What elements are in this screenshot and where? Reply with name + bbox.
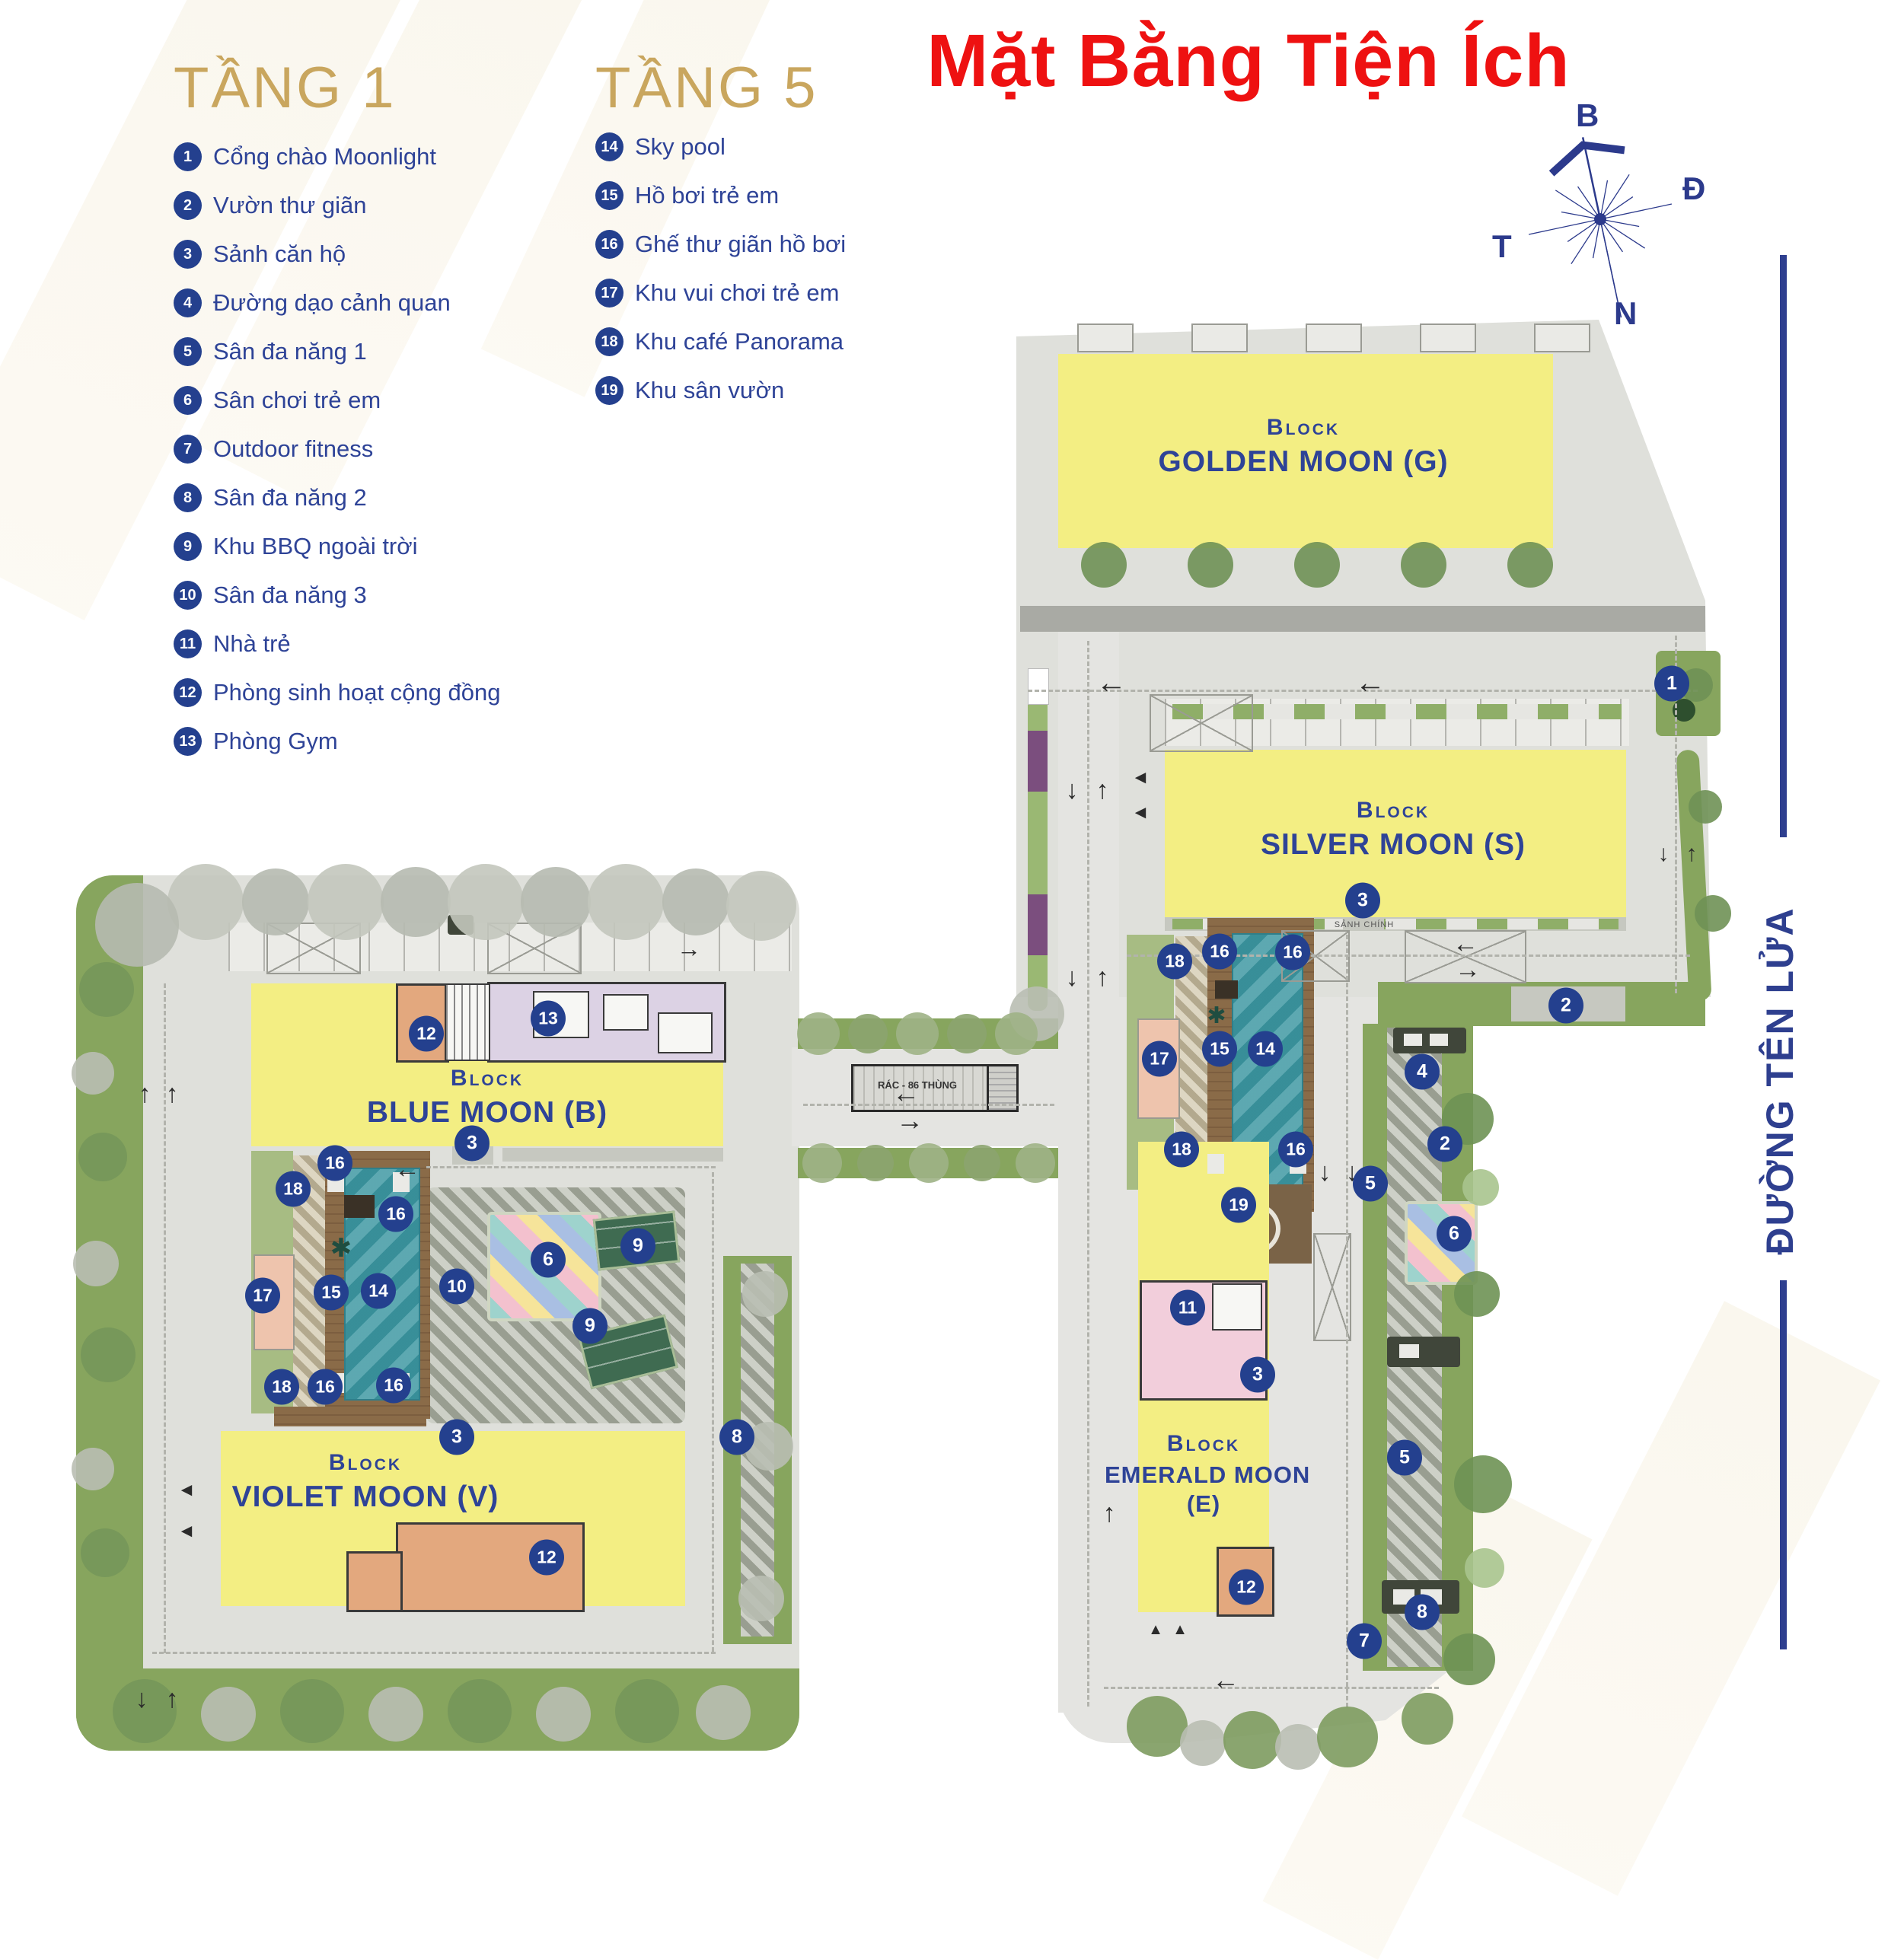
tree-icon <box>242 868 309 935</box>
tree-icon <box>1188 542 1233 588</box>
arrow-right-icon: → <box>896 1107 923 1134</box>
map-shape <box>1346 935 1348 1707</box>
tree-icon <box>1223 1711 1281 1769</box>
road-edge-line <box>1780 255 1787 837</box>
arrow-left-icon: ← <box>1212 1666 1239 1694</box>
arrow-left-icon: ← <box>1355 668 1386 698</box>
map-shape <box>803 1104 1054 1106</box>
arrow-up-icon: ↑ <box>166 1686 179 1712</box>
map-marker-8: 8 <box>1405 1595 1440 1630</box>
map-shape <box>1306 323 1362 352</box>
map-marker-5: 5 <box>1387 1440 1422 1476</box>
tree-icon <box>95 883 179 967</box>
tree-icon <box>909 1143 949 1183</box>
map-shape <box>1104 1687 1439 1689</box>
tree-icon <box>696 1685 751 1740</box>
tree-icon <box>280 1679 344 1743</box>
block-label-blue: BlockBLUE MOON (B) <box>274 1066 700 1130</box>
map-shape <box>1387 1337 1460 1367</box>
map-shape <box>1028 894 1048 955</box>
road-edge-line <box>1780 1280 1787 1649</box>
map-marker-16: 16 <box>1278 1132 1313 1168</box>
map-shape <box>1420 323 1476 352</box>
tree-icon <box>964 1145 1000 1181</box>
map-marker-3: 3 <box>1240 1357 1275 1393</box>
map-shape <box>1399 1344 1419 1358</box>
tri-left-icon: ◄ <box>177 1522 196 1541</box>
palm-icon: ✱ <box>1207 1005 1226 1028</box>
tree-icon <box>1454 1455 1512 1513</box>
map-marker-6: 6 <box>531 1242 566 1278</box>
tree-icon <box>947 1014 987 1053</box>
trash-area-label: RÁC - 86 THÙNG <box>849 1079 986 1091</box>
tree-icon <box>381 867 451 937</box>
map-shape <box>1077 323 1134 352</box>
main-lobby-label: SẢNH CHÍNH <box>1311 920 1418 929</box>
arrow-left-icon: ← <box>1453 931 1478 957</box>
tree-icon <box>1401 542 1446 588</box>
arrow-left-icon: ← <box>394 1156 420 1182</box>
tree-icon <box>308 864 384 940</box>
map-marker-15: 15 <box>1202 1031 1237 1067</box>
map-shape <box>1207 1154 1224 1174</box>
arrow-right-icon: → <box>677 936 701 961</box>
map-shape <box>1020 606 1705 632</box>
tree-icon <box>448 864 524 940</box>
map-shape <box>1191 323 1248 352</box>
map-shape <box>1534 323 1590 352</box>
compass-rose: B Đ T N <box>1486 91 1714 327</box>
block-label-violet: BlockVIOLET MOON (V) <box>152 1450 579 1514</box>
tree-icon <box>368 1687 423 1742</box>
block-label-golden: BlockGOLDEN MOON (G) <box>1090 415 1516 479</box>
tree-icon <box>896 1012 939 1055</box>
map-shape <box>426 1166 716 1168</box>
tree-icon <box>742 1271 788 1317</box>
tree-icon <box>1016 1143 1055 1183</box>
arrow-down-icon: ↓ <box>1319 1159 1331 1185</box>
arrow-down-icon: ↓ <box>1066 777 1079 803</box>
tree-icon <box>1275 1724 1321 1770</box>
map-marker-15: 15 <box>314 1275 349 1311</box>
tree-icon <box>588 864 664 940</box>
map-shape <box>1087 641 1089 1707</box>
tree-icon <box>167 864 244 940</box>
tree-icon <box>79 962 134 1017</box>
tree-icon <box>1294 542 1340 588</box>
map-shape <box>274 1407 426 1426</box>
map-marker-16: 16 <box>378 1197 413 1232</box>
map-marker-2: 2 <box>1548 988 1583 1024</box>
map-shape <box>1028 668 1049 705</box>
map-shape <box>344 1195 375 1218</box>
map-marker-3: 3 <box>1345 883 1380 919</box>
map-marker-16: 16 <box>1275 935 1310 970</box>
tree-icon <box>201 1687 256 1742</box>
tri-up-icon: ▲ <box>1148 1622 1163 1637</box>
tree-icon <box>615 1679 679 1743</box>
tree-icon <box>726 871 796 941</box>
page: { "title": "Mặt Bằng Tiện Ích", "compass… <box>0 0 1888 1778</box>
tree-icon <box>662 868 729 935</box>
map-marker-18: 18 <box>1164 1132 1199 1168</box>
map-marker-2: 2 <box>1427 1127 1462 1162</box>
tree-icon <box>78 1133 127 1181</box>
map-marker-4: 4 <box>1405 1054 1440 1090</box>
tri-left-icon: ◄ <box>1131 769 1150 787</box>
arrow-down-icon: ↓ <box>1066 964 1079 990</box>
map-marker-3: 3 <box>439 1420 474 1455</box>
map-marker-17: 17 <box>245 1278 280 1314</box>
map-marker-12: 12 <box>1229 1570 1264 1605</box>
tree-icon <box>1317 1707 1378 1767</box>
map-marker-16: 16 <box>317 1146 352 1181</box>
arrow-up-icon: ↑ <box>166 1081 179 1107</box>
tree-icon <box>995 1012 1038 1055</box>
map-marker-16: 16 <box>1202 934 1237 970</box>
tri-up-icon: ▲ <box>1172 1622 1188 1637</box>
map-marker-3: 3 <box>454 1126 490 1162</box>
map-marker-9: 9 <box>572 1308 608 1344</box>
tree-icon <box>1507 542 1553 588</box>
tree-icon <box>81 1327 136 1382</box>
map-shape <box>1028 731 1048 792</box>
tree-icon <box>1454 1271 1500 1317</box>
tree-icon <box>536 1687 591 1742</box>
tree-icon <box>802 1143 842 1183</box>
map-shape <box>603 994 649 1031</box>
map-shape <box>445 983 490 1061</box>
tree-icon <box>1180 1720 1226 1766</box>
map-marker-1: 1 <box>1654 666 1689 702</box>
compass-west-label: T <box>1492 228 1512 264</box>
map-shape <box>1215 980 1238 999</box>
block-label-emerald: Block EMERALD MOON (E) <box>1105 1431 1303 1518</box>
tree-icon <box>738 1576 784 1621</box>
compass-north-label: B <box>1576 97 1599 133</box>
map-marker-5: 5 <box>1353 1166 1388 1202</box>
tree-icon <box>1127 1696 1188 1757</box>
map-marker-12: 12 <box>409 1016 444 1052</box>
map-marker-9: 9 <box>620 1229 655 1264</box>
map-shape <box>152 1652 716 1654</box>
map-marker-7: 7 <box>1347 1624 1382 1659</box>
block-label-silver: BlockSILVER MOON (S) <box>1180 798 1606 862</box>
arrow-up-icon: ↑ <box>1686 843 1698 865</box>
map-marker-19: 19 <box>1221 1187 1256 1223</box>
palm-icon: ✱ <box>330 1235 352 1261</box>
map-marker-13: 13 <box>531 1001 566 1037</box>
map-shape <box>1150 694 1253 752</box>
tree-icon <box>848 1014 888 1053</box>
tree-icon <box>73 1241 119 1286</box>
arrow-down-icon: ↓ <box>1658 843 1670 865</box>
map-shape <box>658 1012 713 1053</box>
map-marker-10: 10 <box>439 1269 474 1305</box>
map-shape <box>1028 668 1048 1011</box>
compass-east-label: Đ <box>1682 171 1705 206</box>
tree-icon <box>521 867 591 937</box>
arrow-up-icon: ↑ <box>1096 964 1109 990</box>
map-marker-18: 18 <box>276 1171 311 1207</box>
map-marker-16: 16 <box>376 1368 411 1404</box>
compass-south-label: N <box>1614 295 1637 327</box>
tree-icon <box>797 1012 840 1055</box>
map-shape <box>502 1148 723 1162</box>
map-marker-18: 18 <box>1157 944 1192 980</box>
map-marker-11: 11 <box>1170 1290 1205 1326</box>
tree-icon <box>72 1448 114 1490</box>
map-shape <box>1430 1034 1448 1046</box>
map-marker-14: 14 <box>1248 1031 1283 1067</box>
tree-icon <box>81 1528 129 1577</box>
map-marker-17: 17 <box>1142 1041 1177 1077</box>
map-marker-12: 12 <box>529 1540 564 1576</box>
tree-icon <box>1689 790 1722 824</box>
map-shape <box>712 1172 714 1652</box>
tree-icon <box>448 1679 512 1743</box>
map-marker-18: 18 <box>264 1369 299 1405</box>
tree-icon <box>1695 895 1731 932</box>
map-shape <box>76 1668 799 1751</box>
arrow-right-icon: → <box>1455 957 1481 983</box>
map-shape <box>1212 1283 1262 1331</box>
map-marker-16: 16 <box>308 1369 343 1405</box>
arrow-down-icon: ↓ <box>136 1686 148 1712</box>
arrow-left-icon: ← <box>1096 668 1127 698</box>
tree-icon <box>1402 1693 1453 1745</box>
map-marker-14: 14 <box>361 1273 396 1309</box>
tree-icon <box>1443 1633 1495 1685</box>
tree-icon <box>1465 1548 1504 1588</box>
map-marker-8: 8 <box>719 1420 754 1455</box>
street-name-label: ĐƯỜNG TÊN LỬA <box>1758 907 1802 1254</box>
map-shape <box>346 1551 403 1612</box>
arrow-up-icon: ↑ <box>1096 777 1109 803</box>
map-shape <box>1404 1034 1422 1046</box>
tree-icon <box>1462 1169 1499 1206</box>
tri-left-icon: ◄ <box>1131 804 1150 822</box>
map-marker-6: 6 <box>1437 1216 1472 1252</box>
tree-icon <box>72 1052 114 1095</box>
tree-icon <box>857 1145 894 1181</box>
arrow-up-icon: ↑ <box>139 1081 151 1107</box>
tree-icon <box>1081 542 1127 588</box>
